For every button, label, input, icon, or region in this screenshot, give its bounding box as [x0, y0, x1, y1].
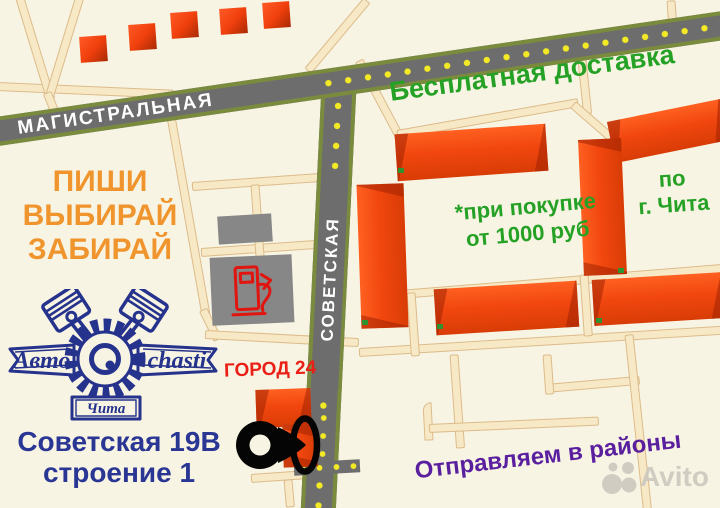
minor-road [284, 479, 295, 508]
minor-road [423, 402, 434, 440]
house [79, 35, 108, 63]
logo-word-left: Авто [11, 348, 70, 374]
store-name: ГОРОД 24 [224, 357, 317, 382]
delivery-area-text: по г. Чита [620, 163, 720, 222]
minor-road [543, 354, 555, 395]
avito-dots-icon [601, 459, 637, 495]
parking-lot [217, 213, 273, 244]
house [170, 11, 199, 39]
avtochasti-logo: Авто chasti Чита [6, 289, 220, 425]
bush [362, 320, 368, 325]
location-pin-icon [233, 414, 327, 476]
gas-station-icon [227, 260, 275, 320]
minor-road [546, 376, 640, 393]
house [219, 7, 248, 35]
cta-line-1: ПИШИ [2, 165, 198, 199]
cta-text: ПИШИ ВЫБИРАЙ ЗАБИРАЙ [2, 165, 198, 267]
building [592, 272, 720, 326]
building [357, 183, 409, 329]
cta-line-3: ЗАБИРАЙ [2, 233, 198, 267]
logo-city: Чита [87, 401, 126, 417]
avito-watermark: Avito [601, 459, 709, 495]
bush [596, 318, 602, 323]
bush [398, 168, 404, 173]
cta-line-2: ВЫБИРАЙ [2, 199, 198, 233]
avito-watermark-text: Avito [640, 461, 709, 493]
house [262, 1, 291, 29]
bush [437, 324, 443, 329]
address-line-1: Советская 19В [0, 426, 238, 457]
map-canvas: СОВЕТСКАЯ МАГИСТРАЛЬНАЯ Бесплатная доста… [0, 0, 720, 508]
building [434, 281, 580, 336]
gas-station-lot [210, 254, 295, 326]
house [128, 23, 157, 51]
bush [618, 268, 624, 273]
logo-word-right: chasti [148, 348, 207, 374]
building [395, 124, 549, 181]
street-label-sovetskaya: СОВЕТСКАЯ [311, 169, 349, 390]
building [607, 99, 720, 163]
minor-road [450, 354, 466, 448]
address-line-2: строение 1 [0, 457, 238, 488]
store-address: Советская 19В строение 1 [0, 426, 238, 488]
